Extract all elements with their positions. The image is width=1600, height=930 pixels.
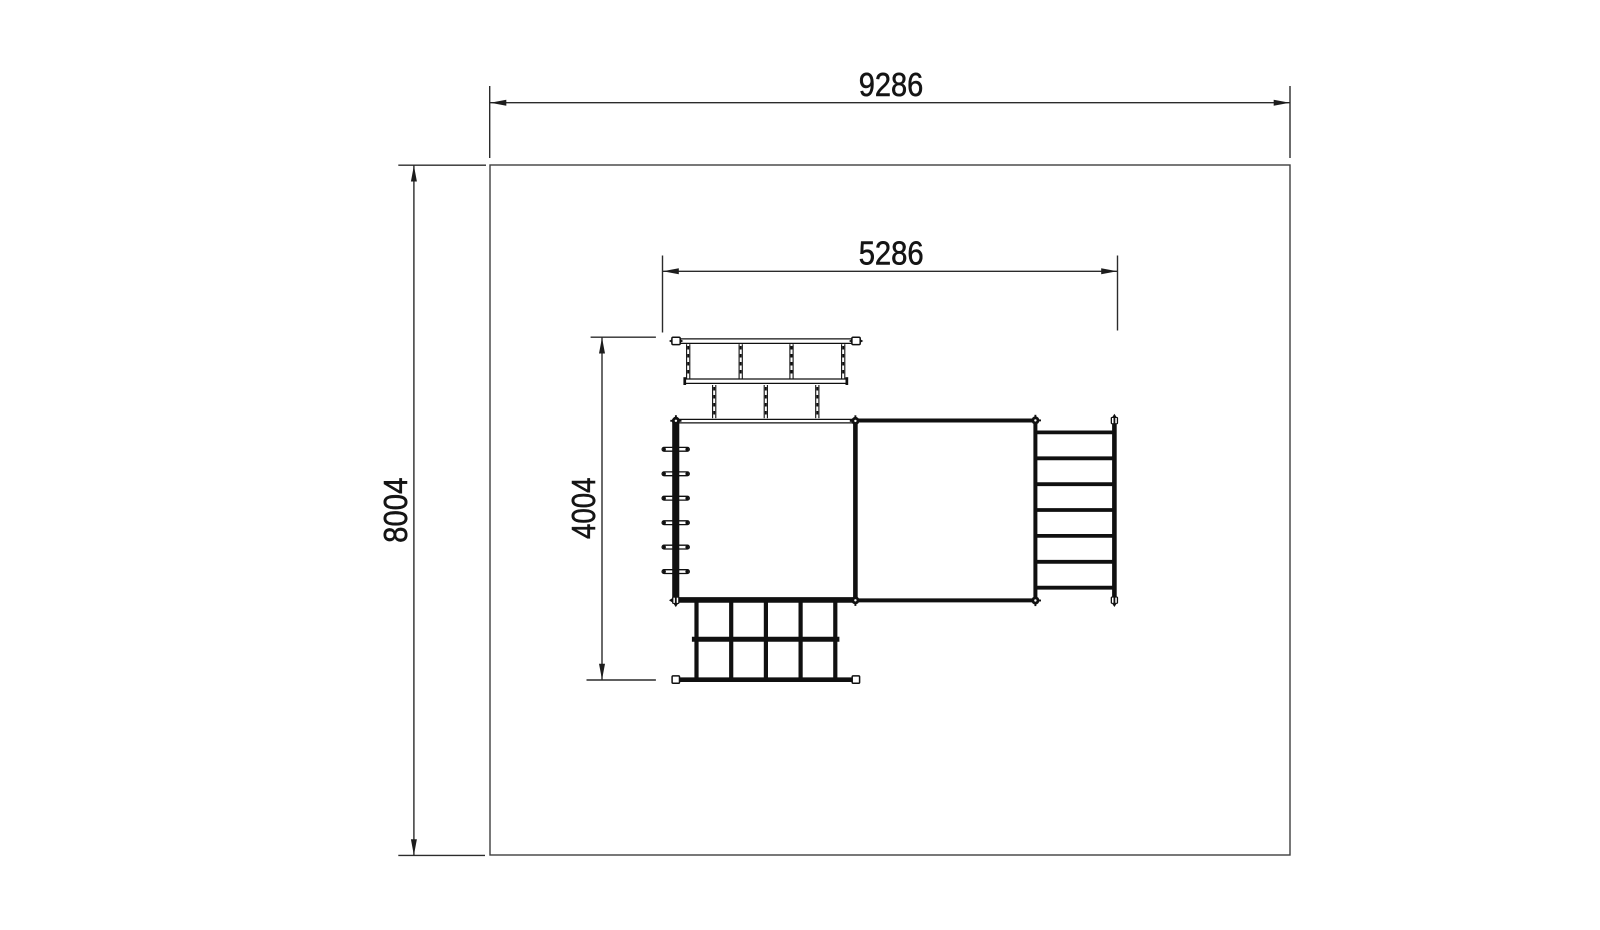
svg-text:5286: 5286 [859, 234, 924, 271]
svg-text:4004: 4004 [565, 477, 602, 539]
svg-text:9286: 9286 [859, 66, 924, 103]
svg-text:8004: 8004 [377, 478, 414, 543]
